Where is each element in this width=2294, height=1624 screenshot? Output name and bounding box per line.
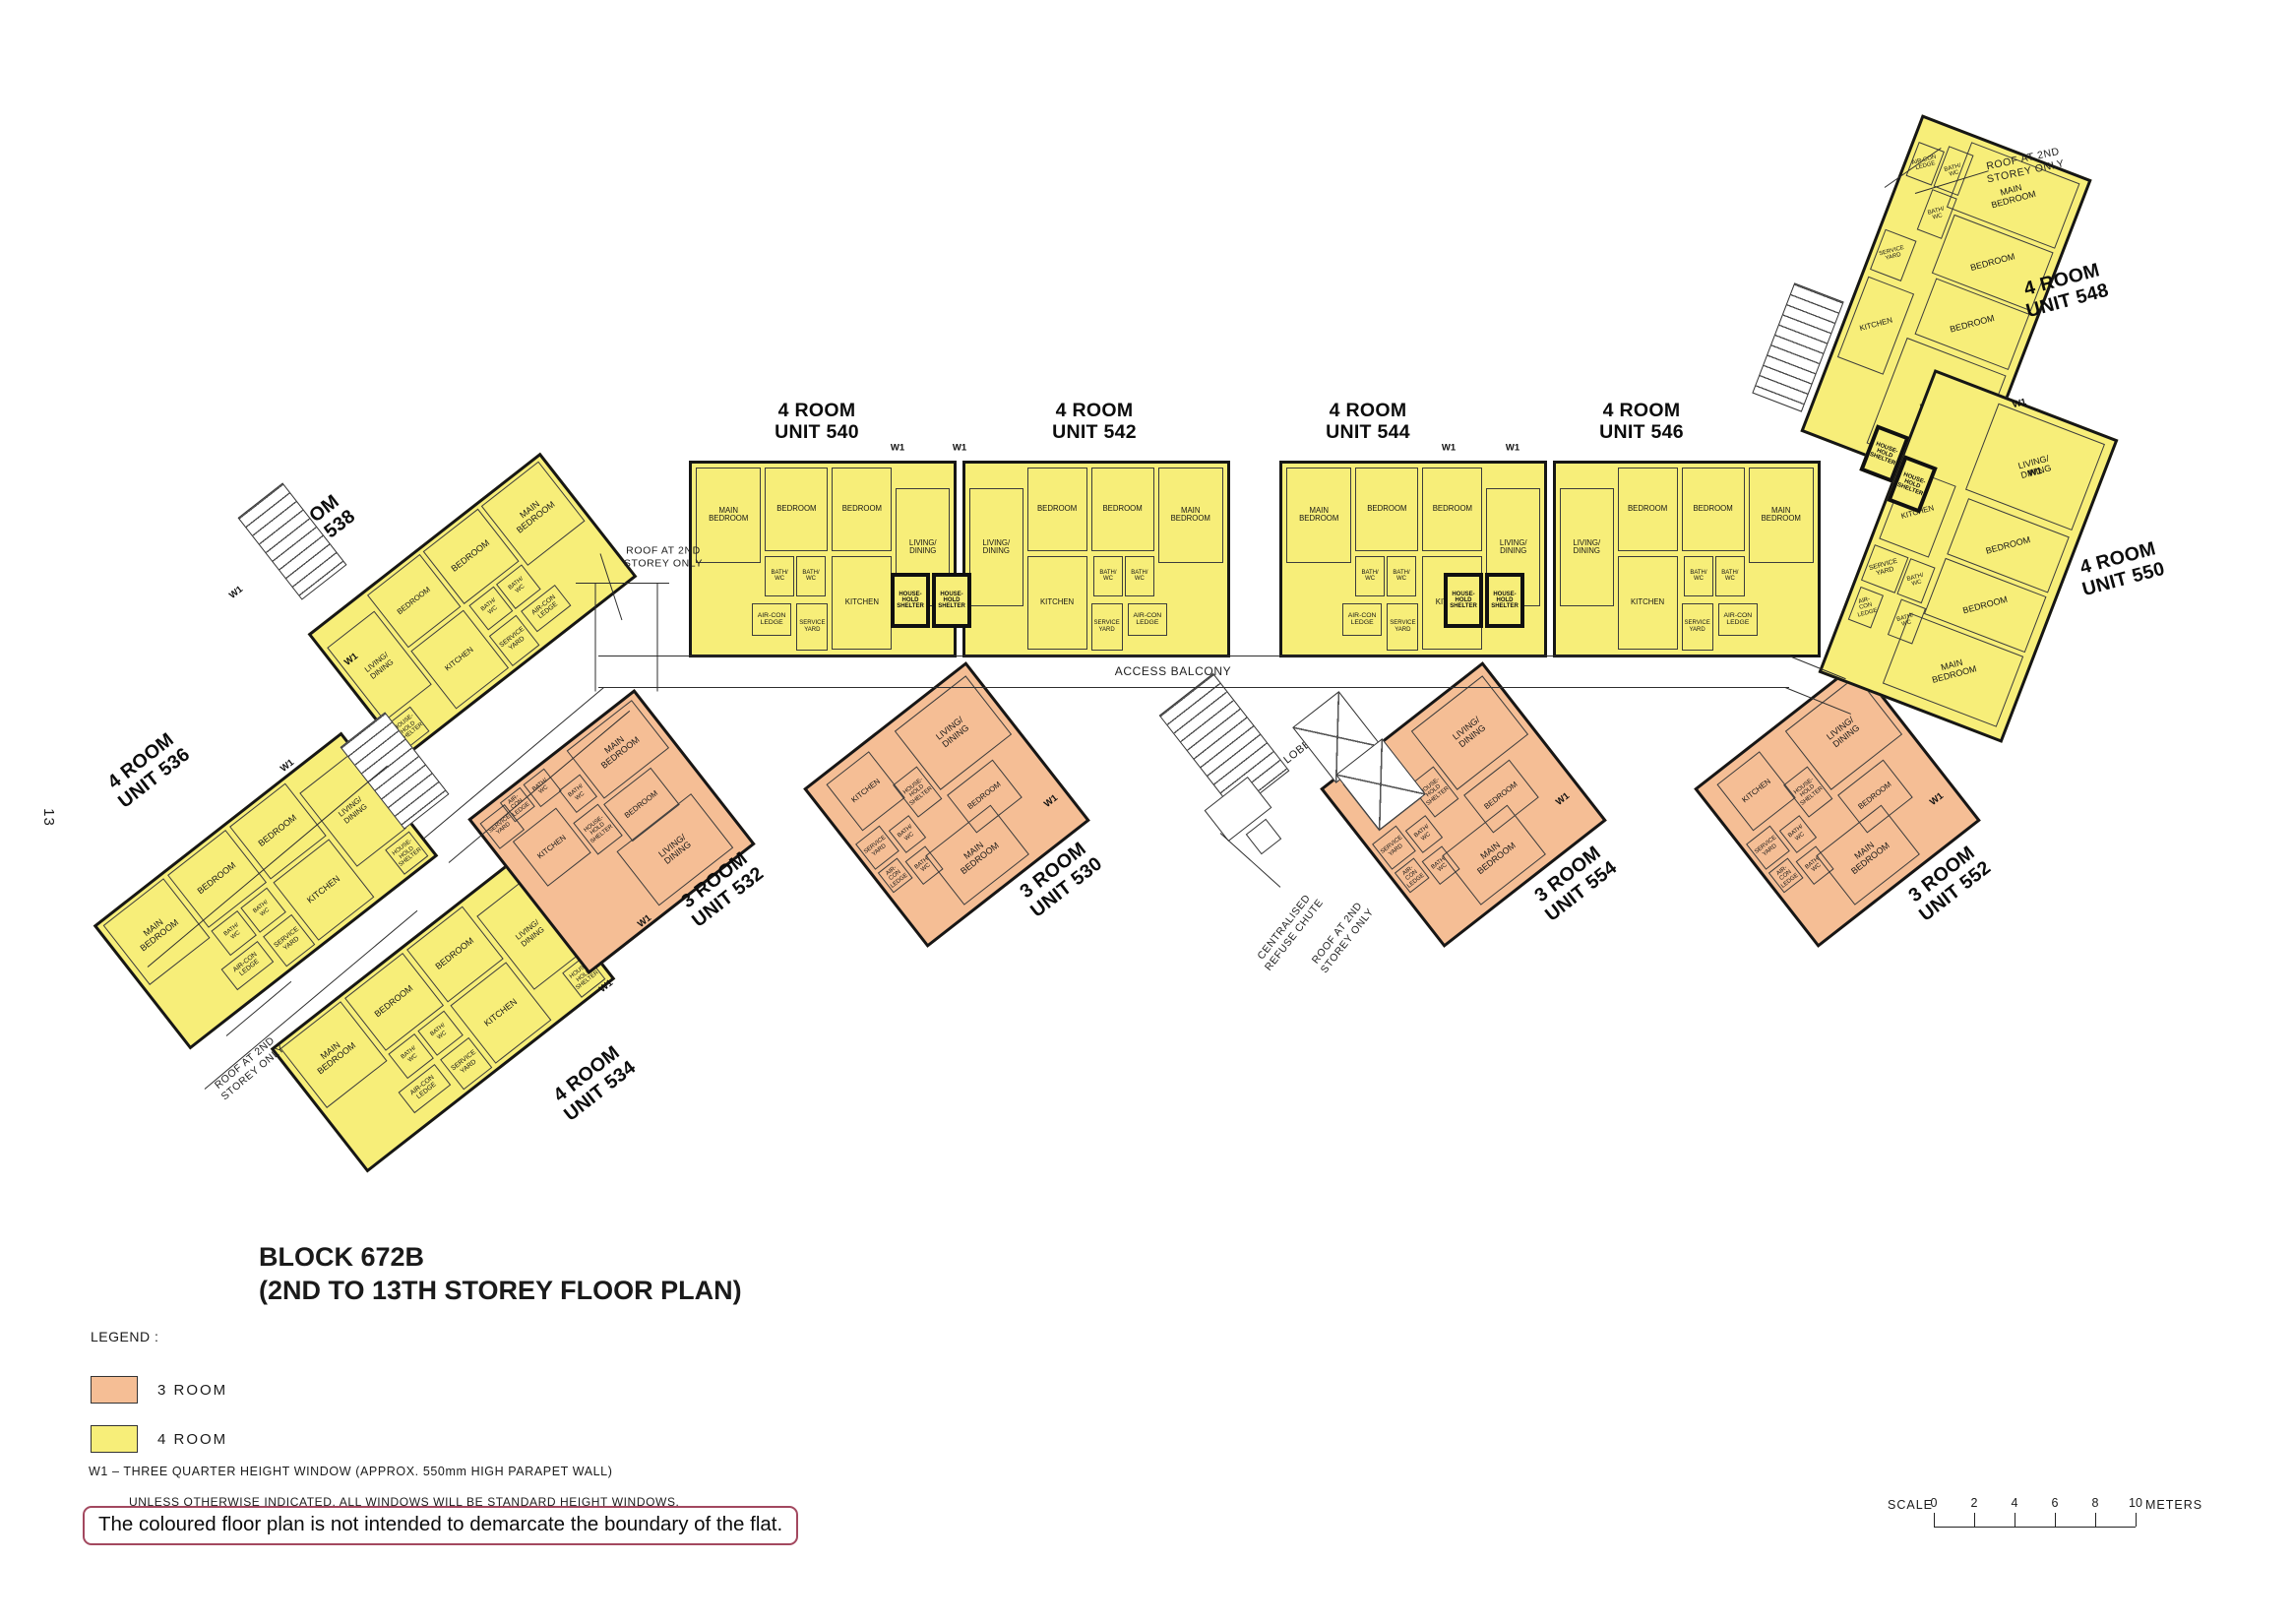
room-label: BATH/ WC (568, 783, 589, 804)
room-label: MAIN BEDROOM (1470, 834, 1519, 877)
room-living-: LIVING/ DINING (969, 488, 1023, 606)
room-label: KITCHEN (850, 778, 882, 805)
room-bath-: BATH/ WC (1715, 556, 1744, 596)
w1-marker: W1 (227, 584, 245, 600)
room-label: KITCHEN (1040, 598, 1074, 606)
room-label: SERVICE YARD (499, 626, 530, 656)
unit-544-label: 4 ROOM UNIT 544 (1326, 400, 1410, 443)
room-bedroom: BEDROOM (1682, 468, 1745, 551)
room-main: MAIN BEDROOM (696, 468, 762, 563)
unit-546-label: 4 ROOM UNIT 546 (1599, 400, 1684, 443)
room-label: BATH/ WC (802, 570, 819, 583)
room-label: MAIN BEDROOM (1171, 507, 1210, 524)
room-bedroom: BEDROOM (1355, 468, 1418, 551)
room-label: BATH/ WC (1927, 206, 1947, 222)
room-label: BEDROOM (1483, 781, 1519, 811)
room-living-: LIVING/ DINING (1560, 488, 1614, 606)
room-bedroom: BEDROOM (1618, 468, 1678, 551)
scale-ticks: 0246810 (1934, 1496, 2142, 1531)
room-bedroom: BEDROOM (1027, 468, 1087, 551)
room-label: MAIN BEDROOM (954, 834, 1002, 877)
room-label: BATH/ WC (223, 922, 245, 943)
room-label: BEDROOM (842, 505, 882, 513)
room-label: BEDROOM (1693, 505, 1732, 513)
room-label: SERVICE YARD (1754, 835, 1782, 860)
room-label: SERVICE YARD (1390, 620, 1415, 633)
room-bedroom: BEDROOM (765, 468, 828, 551)
room-bath-: BATH/ WC (765, 556, 793, 596)
floor-plan: MAIN BEDROOMBEDROOMBEDROOMLIVING/ DINING… (0, 0, 2294, 1624)
room-label: KITCHEN (1859, 317, 1893, 334)
room-label: BEDROOM (450, 538, 492, 574)
legend-label-3room: 3 ROOM (157, 1382, 227, 1399)
room-air-con: AIR-CON LEDGE (752, 603, 791, 636)
plan-line (598, 687, 1789, 688)
room-label: BEDROOM (396, 586, 432, 616)
unit-540-label: 4 ROOM UNIT 540 (775, 400, 859, 443)
room-label: BEDROOM (966, 781, 1003, 811)
room-label: MAIN BEDROOM (709, 507, 748, 524)
page-number: 13 (40, 808, 57, 827)
scale-tick-number: 0 (1931, 1496, 1938, 1510)
room-label: BATH/ WC (401, 1045, 422, 1066)
room-air-con: AIR-CON LEDGE (1342, 603, 1382, 636)
room-main: MAIN BEDROOM (926, 805, 1029, 906)
unit-550-label: 4 ROOM UNIT 550 (2075, 536, 2167, 600)
room-label: AIR-CON LEDGE (1348, 612, 1377, 627)
unit-546-footprint: MAIN BEDROOMBEDROOMBEDROOMLIVING/ DINING… (1553, 461, 1821, 657)
room-label: LIVING/ DINING (1500, 539, 1527, 556)
floor-plan-sheet: MAIN BEDROOMBEDROOMBEDROOMLIVING/ DINING… (0, 0, 2294, 1624)
room-bath-: BATH/ WC (1387, 556, 1415, 596)
plan-line (595, 584, 596, 692)
room-label: SERVICE YARD (1879, 245, 1907, 264)
room-label: BEDROOM (1102, 505, 1142, 513)
room-label: LIVING/ DINING (1452, 716, 1488, 750)
room-label: BEDROOM (373, 984, 415, 1020)
room-kitchen: KITCHEN (1618, 556, 1678, 650)
room-label: MAIN BEDROOM (1844, 834, 1892, 877)
room-label: AIR-CON LEDGE (1771, 861, 1801, 890)
room-label: KITCHEN (1741, 778, 1772, 805)
room-label: BEDROOM (1969, 252, 2015, 273)
room-label: BATH/ WC (253, 900, 275, 920)
room-service: SERVICE YARD (796, 603, 828, 652)
scale-tick-number: 4 (2012, 1496, 2018, 1510)
w1-marker: W1 (1442, 443, 1456, 454)
room-label: BEDROOM (623, 789, 659, 820)
room-service: SERVICE YARD (1682, 603, 1713, 652)
room-label: MAIN BEDROOM (1762, 507, 1801, 524)
room-service: SERVICE YARD (1387, 603, 1418, 652)
title-block: BLOCK 672B (259, 1242, 424, 1272)
room-label: MAIN BEDROOM (133, 910, 181, 954)
scale-tick (2055, 1513, 2056, 1527)
room-label: BATH/ WC (1413, 824, 1435, 844)
annotation-roof-at-2nd: ROOF AT 2ND STOREY ONLY (624, 544, 703, 569)
room-air-con: AIR-CON LEDGE (1718, 603, 1758, 636)
unit-544-footprint: MAIN BEDROOMBEDROOMBEDROOMLIVING/ DINING… (1279, 461, 1547, 657)
legend-label-4room: 4 ROOM (157, 1431, 227, 1448)
room-label: BEDROOM (1985, 535, 2031, 556)
scale-bar: SCALE 0246810 METERS (1888, 1496, 2222, 1535)
room-label: AIR-CON LEDGE (881, 861, 910, 890)
room-bath-: BATH/ WC (1125, 556, 1153, 596)
room-label: BEDROOM (1857, 781, 1893, 811)
room-label: BEDROOM (196, 861, 238, 897)
shelter-structure: HOUSE- HOLD SHELTER (891, 573, 930, 628)
shelter-structure: HOUSE- HOLD SHELTER (1485, 573, 1524, 628)
room-air-con: AIR-CON LEDGE (1128, 603, 1167, 636)
room-main: MAIN BEDROOM (1158, 468, 1224, 563)
legend-swatch-4room (91, 1425, 138, 1453)
room-label: BATH/ WC (531, 778, 553, 798)
scale-tick-number: 2 (1971, 1496, 1978, 1510)
legend-heading: LEGEND : (91, 1329, 158, 1344)
room-label: KITCHEN (444, 646, 475, 673)
room-label: BATH/ WC (1944, 162, 1963, 179)
scale-baseline (1934, 1527, 2136, 1528)
room-label: MAIN BEDROOM (310, 1033, 358, 1077)
disclaimer-box: The coloured floor plan is not intended … (83, 1506, 798, 1545)
room-label: BEDROOM (1628, 505, 1667, 513)
unit-540-footprint: MAIN BEDROOMBEDROOMBEDROOMLIVING/ DINING… (689, 461, 957, 657)
room-label: SERVICE YARD (274, 926, 305, 956)
room-label: LIVING/ DINING (935, 716, 971, 750)
room-label: AIR-CON LEDGE (530, 593, 562, 622)
scale-tick (2095, 1513, 2096, 1527)
shelter-structure: HOUSE- HOLD SHELTER (1444, 573, 1483, 628)
pbox-structure (1246, 819, 1281, 854)
room-label: AIR-CON LEDGE (409, 1074, 441, 1102)
note-w1-window: W1 – THREE QUARTER HEIGHT WINDOW (APPROX… (89, 1465, 613, 1478)
w1-marker: W1 (891, 443, 904, 454)
room-label: BEDROOM (1949, 314, 1995, 335)
annotation-roof-at-2nd: ROOF AT 2ND STOREY ONLY (211, 1033, 287, 1103)
unit-536-label: 4 ROOM UNIT 536 (100, 726, 194, 813)
room-label: BATH/ WC (1906, 572, 1926, 589)
room-label: KITCHEN (845, 598, 879, 606)
room-bedroom: BEDROOM (832, 468, 892, 551)
room-service: SERVICE YARD (1091, 603, 1123, 652)
room-label: KITCHEN (1631, 598, 1664, 606)
room-bath-: BATH/ WC (1355, 556, 1384, 596)
scale-label: SCALE (1888, 1498, 1933, 1512)
scale-tick (1974, 1513, 1975, 1527)
room-label: LIVING/ DINING (657, 833, 694, 867)
scale-tick (2136, 1513, 2137, 1527)
w1-marker: W1 (953, 443, 966, 454)
room-label: AIR-CON LEDGE (1852, 595, 1879, 620)
room-label: LIVING/ DINING (982, 539, 1010, 556)
plan-line (598, 656, 1789, 656)
room-label: BATH/ WC (1721, 570, 1738, 583)
room-label: BEDROOM (434, 936, 476, 971)
room-kitchen: KITCHEN (827, 751, 905, 831)
room-label: AIR-CON LEDGE (232, 951, 264, 979)
w1-marker: W1 (1506, 443, 1519, 454)
room-label: MAIN BEDROOM (1299, 507, 1338, 524)
room-label: LIVING/ DINING (1826, 716, 1862, 750)
room-label: BEDROOM (1037, 505, 1077, 513)
room-label: AIR-CON LEDGE (1397, 861, 1427, 890)
legend-swatch-3room (91, 1376, 138, 1404)
room-label: AIR-CON LEDGE (1134, 612, 1162, 627)
room-label: BEDROOM (1433, 505, 1472, 513)
shelter-structure: HOUSE- HOLD SHELTER (932, 573, 971, 628)
room-label: BATH/ WC (1690, 570, 1706, 583)
room-kitchen: KITCHEN (832, 556, 892, 650)
room-label: MAIN BEDROOM (1929, 655, 1978, 685)
unit-538-footprint: MAIN BEDROOMBEDROOMBEDROOMLIVING/ DINING… (308, 453, 638, 759)
room-label: MAIN BEDROOM (1988, 180, 2037, 211)
plan-line (576, 583, 669, 584)
room-label: BATH/ WC (1896, 613, 1916, 630)
room-label: BATH/ WC (1787, 824, 1809, 844)
room-label: LIVING/ DINING (1573, 539, 1600, 556)
room-label: SERVICE YARD (1869, 558, 1900, 580)
room-bedroom: BEDROOM (1091, 468, 1154, 551)
scale-tick-number: 8 (2092, 1496, 2099, 1510)
room-label: HOUSE- HOLD SHELTER (1791, 776, 1824, 807)
room-label: KITCHEN (482, 997, 519, 1029)
room-label: AIR-CON LEDGE (758, 612, 786, 627)
room-label: SERVICE YARD (451, 1049, 482, 1079)
room-service: SERVICE YARD (1870, 228, 1917, 281)
room-label: BEDROOM (1367, 505, 1406, 513)
room-bath-: BATH/ WC (1093, 556, 1122, 596)
room-bedroom: BEDROOM (1422, 468, 1482, 551)
room-bath-: BATH/ WC (1684, 556, 1712, 596)
room-label: BATH/ WC (897, 824, 918, 844)
room-label: HOUSE- HOLD SHELTER (390, 837, 422, 868)
room-label: LIVING/ DINING (338, 796, 369, 826)
room-kitchen: KITCHEN (1717, 751, 1796, 831)
room-label: KITCHEN (536, 834, 568, 861)
room-label: BATH/ WC (430, 1023, 452, 1043)
room-label: BATH/ WC (1099, 570, 1116, 583)
plan-line (657, 584, 658, 692)
scale-tick-number: 6 (2052, 1496, 2059, 1510)
room-main: MAIN BEDROOM (1749, 468, 1815, 563)
unit-542-label: 4 ROOM UNIT 542 (1052, 400, 1137, 443)
room-label: BATH/ WC (771, 570, 787, 583)
room-label: BEDROOM (1961, 594, 2008, 615)
room-label: SERVICE YARD (1685, 620, 1710, 633)
scale-units-label: METERS (2145, 1498, 2202, 1512)
room-main: MAIN BEDROOM (1286, 468, 1352, 563)
room-label: SERVICE YARD (1380, 835, 1408, 860)
room-label: AIR-CON LEDGE (1724, 612, 1753, 627)
unit-534-label: 4 ROOM UNIT 534 (546, 1039, 640, 1126)
room-label: BATH/ WC (1393, 570, 1409, 583)
stair-structure (1159, 673, 1290, 813)
room-label: HOUSE- HOLD SHELTER (582, 813, 614, 844)
room-label: LIVING/ DINING (909, 539, 937, 556)
room-label: MAIN BEDROOM (509, 492, 557, 535)
scale-tick (1934, 1513, 1935, 1527)
room-label: HOUSE- HOLD SHELTER (900, 776, 933, 807)
room-label: BATH/ WC (480, 597, 502, 618)
room-label: BATH/ WC (1131, 570, 1147, 583)
scale-tick (2015, 1513, 2015, 1527)
room-label: BATH/ WC (508, 577, 529, 597)
room-label: SERVICE YARD (799, 620, 825, 633)
room-label: SERVICE YARD (1094, 620, 1120, 633)
title-storey: (2ND TO 13TH STOREY FLOOR PLAN) (259, 1276, 742, 1305)
room-kitchen: KITCHEN (1027, 556, 1087, 650)
room-label: BEDROOM (776, 505, 816, 513)
room-label: LIVING/ DINING (515, 919, 546, 949)
unit-542-footprint: MAIN BEDROOMBEDROOMBEDROOMLIVING/ DINING… (962, 461, 1230, 657)
room-air-con: AIR-CON LEDGE (1848, 587, 1884, 628)
room-label: KITCHEN (305, 874, 341, 906)
page-title: BLOCK 672B(2ND TO 13TH STOREY FLOOR PLAN… (259, 1240, 742, 1307)
room-label: SERVICE YARD (863, 835, 892, 860)
room-label: BATH/ WC (1361, 570, 1378, 583)
room-bath-: BATH/ WC (796, 556, 825, 596)
scale-tick-number: 10 (2129, 1496, 2142, 1510)
room-label: LIVING/ DINING (364, 652, 396, 681)
